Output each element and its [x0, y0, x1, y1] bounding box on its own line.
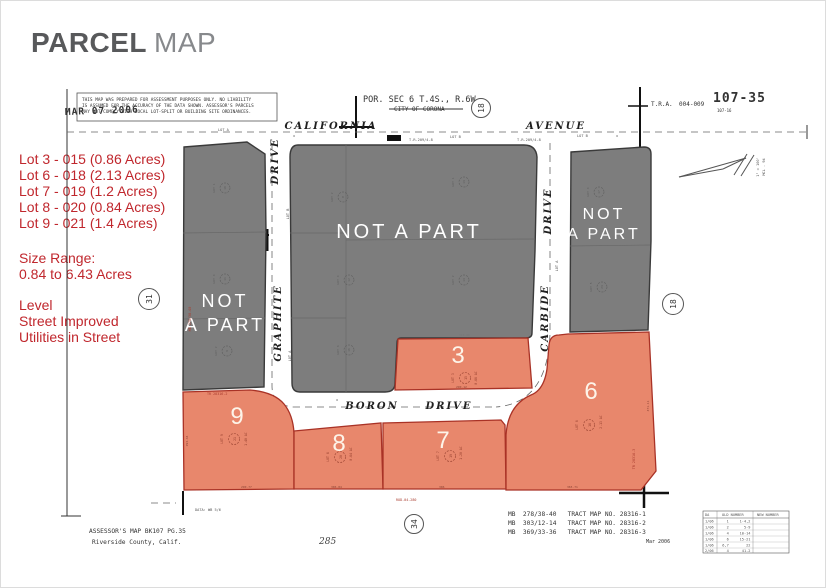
- parcel-8-lot-label: LOT 8: [326, 452, 330, 462]
- edge-label-tr209: T.R.209/4-8: [517, 138, 541, 142]
- parcel-8-pin: 20: [339, 455, 343, 459]
- edge-label-x: x: [293, 134, 296, 138]
- parcel-7-pin: 19: [449, 454, 453, 458]
- ghost-lot-label: LOT 4: [336, 275, 340, 284]
- ghost-pin: 13: [462, 180, 466, 184]
- street-label-carbide: CARBIDE: [540, 284, 551, 351]
- parcel-3-dim-top: 318.80: [459, 333, 470, 337]
- west-edge-ref-note: MB 278/38-40: [188, 307, 192, 332]
- disclaimer-box: THIS MAP WAS PREPARED FOR ASSESSMENT PUR…: [65, 93, 277, 121]
- tra-label: T.R.A.: [651, 101, 673, 108]
- ghost-pin: 16: [347, 348, 351, 352]
- parcel-6-number: 6: [584, 378, 597, 405]
- parcel-6-acres: 2.13 AC: [599, 415, 603, 429]
- disclaimer-line1: THIS MAP WAS PREPARED FOR ASSESSMENT PUR…: [82, 97, 252, 103]
- parcel-8-dim-bottom: 306.84: [331, 485, 342, 489]
- edge-label-lot-a: LOT A: [555, 260, 559, 272]
- ghost-lot-label: LOT 3: [336, 345, 340, 354]
- section-circle-south: 34: [405, 515, 424, 534]
- parcel-8-acres: 0.84 AC: [349, 447, 353, 461]
- parcel-map-drawing: NOT A PART NOT A PART NOT A PART 3 6 7 8…: [1, 1, 826, 588]
- parcel-9-acres: 1.40 AC: [244, 432, 248, 446]
- table-row: 1/06 6,7 22: [705, 544, 750, 548]
- assessor-map-line2: Riverside County, Calif.: [92, 539, 181, 546]
- street-label-boron: BORON: [344, 401, 399, 412]
- ghost-lot-label: LOT 1: [451, 177, 455, 186]
- tra-value: 004-009: [679, 101, 705, 108]
- parcel-3-number: 3: [451, 342, 464, 369]
- section-circle-west: 31: [139, 289, 160, 310]
- ghost-pin: 14: [462, 278, 466, 282]
- street-label-drive-east: DRIVE: [543, 187, 554, 235]
- rod-note: ROD-04-280: [396, 498, 416, 502]
- parcel-3-acres: 0.86 AC: [474, 371, 478, 385]
- parcel-9-dim-left: 293.44: [185, 435, 189, 446]
- ghost-pin: 17: [597, 190, 601, 194]
- parcel-3-dim-bottom: 290.12: [456, 385, 467, 389]
- ghost-pin: 10: [223, 186, 227, 190]
- table-header-old: OLD NUMBER: [722, 513, 744, 517]
- not-a-part-label-east-line2: A PART: [567, 226, 640, 243]
- table-row: 2/06 4 41-2: [705, 549, 750, 553]
- ghost-lot-label: LOT 1: [212, 183, 216, 192]
- section-circle-east-value: 18: [669, 299, 678, 309]
- edge-label-tr209: T.R.209/4-8: [409, 138, 433, 142]
- tract-ref-line2: MB 303/12-14 TRACT MAP NO. 28316-2: [508, 520, 646, 527]
- parcel-7-number: 7: [436, 427, 449, 454]
- map-date: Mar 2006: [646, 539, 670, 545]
- scale-note-2: MCL - 94: [762, 158, 766, 175]
- edge-label-x: x: [336, 398, 339, 402]
- street-label-graphite: GRAPHITE: [273, 284, 284, 361]
- parcel-6-lot-label: LOT 6: [575, 420, 579, 430]
- ghost-pin: 11: [223, 277, 227, 281]
- not-a-part-label-center: NOT A PART: [336, 221, 482, 243]
- edge-label-x: x: [616, 134, 619, 138]
- por-sec-label: POR. SEC 6 T.4S., R.6W: [363, 95, 476, 105]
- scale-arrow: 1" = 100' MCL - 94: [679, 154, 766, 177]
- ghost-lot-label: LOT 2: [451, 275, 455, 284]
- parcel-map-page: PARCELMAP Lot 3 - 015 (0.86 Acres) Lot 6…: [0, 0, 826, 588]
- edge-label-lot-b: LOT B: [450, 135, 461, 139]
- street-label-avenue: AVENUE: [525, 121, 586, 132]
- parcel-7-lot-label: LOT 7: [436, 451, 440, 461]
- not-a-part-label-west-line2: A PART: [185, 315, 265, 335]
- table-row: 1/06 4 10-14: [705, 532, 750, 536]
- parcel-9-tract-note: TR 28316-2: [207, 392, 227, 396]
- tract-ref-line1: MB 278/38-40 TRACT MAP NO. 28316-1: [508, 511, 646, 518]
- table-row: 1/06 1 1-4,2: [705, 520, 750, 524]
- tract-ref-line3: MB 369/33-36 TRACT MAP NO. 28316-3: [508, 529, 646, 536]
- table-header-da: DA: [705, 513, 710, 517]
- street-label-california: CALIFORNIA: [284, 121, 377, 132]
- edge-label-lot-b: LOT B: [286, 209, 290, 220]
- edge-label-lot-a: LOT A: [288, 350, 292, 362]
- section-circle-west-value: 31: [145, 294, 154, 304]
- ghost-pin: 12: [347, 278, 351, 282]
- parcel-6-dim-bottom: 365.71: [567, 485, 578, 489]
- table-row: 1/06 2 5-9: [705, 526, 750, 530]
- revision-table: DA OLD NUMBER NEW NUMBER 1/06 1 1-4,2 1/…: [703, 511, 789, 553]
- assessor-map-line1: ASSESSOR'S MAP BK107 PG.35: [89, 528, 186, 535]
- parcel-6-tract-note: TR 28316-3: [632, 449, 636, 469]
- section-circle-east: 18: [663, 294, 684, 315]
- parcel-9-lot-label: LOT 9: [220, 434, 224, 444]
- ghost-pin: 9: [225, 350, 229, 352]
- parcel-9-pin: 21: [233, 437, 237, 441]
- parcel-3-pin: 15: [464, 376, 468, 380]
- table-row: 1/06 6 15-21: [705, 538, 750, 542]
- section-circle-top: 18: [472, 99, 491, 118]
- sheet-sub-number: 107-16: [717, 108, 732, 113]
- section-circle-south-value: 34: [410, 519, 419, 529]
- parcel-3-lot-label: LOT 3: [451, 373, 455, 383]
- edge-label-lot-b: LOT B: [577, 134, 588, 138]
- parcel-7-dim-bottom: 306: [439, 485, 445, 489]
- table-header-new: NEW NUMBER: [757, 513, 779, 517]
- parcel-9-number: 9: [230, 403, 243, 430]
- ghost-lot-label: LOT 2: [214, 346, 218, 355]
- ghost-pin: 23: [600, 285, 604, 289]
- city-label: CITY OF CORONA: [394, 106, 445, 113]
- not-a-part-label-west-line1: NOT: [202, 291, 249, 311]
- parcel-7-acres: 1.20 AC: [459, 446, 463, 460]
- parcel-9-dim-bottom: 290.77: [241, 485, 252, 489]
- section-circle-top-value: 18: [477, 103, 486, 113]
- ghost-lot-label: LOT 4: [586, 187, 590, 196]
- sheet-number: 107-35: [713, 91, 766, 106]
- edge-label-lot-a: LOT A: [218, 128, 230, 132]
- ghost-lot-label: LOT 5: [589, 282, 593, 291]
- parcel-6-dim-right: 471.11: [646, 400, 650, 411]
- street-label-drive-south: DRIVE: [424, 401, 472, 412]
- data-note: DATA: WB 5/6: [195, 508, 221, 512]
- street-label-drive-west: DRIVE: [270, 137, 281, 185]
- scale-note: 1" = 100': [756, 157, 760, 176]
- ghost-lot-label: LOT 4: [212, 274, 216, 283]
- not-a-part-label-east-line1: NOT: [583, 206, 626, 223]
- parcel-6-pin: 18: [588, 423, 592, 427]
- page-number: 285: [318, 537, 336, 547]
- ghost-lot-label: LOT 2: [330, 192, 334, 201]
- ghost-pin: 8: [341, 196, 345, 198]
